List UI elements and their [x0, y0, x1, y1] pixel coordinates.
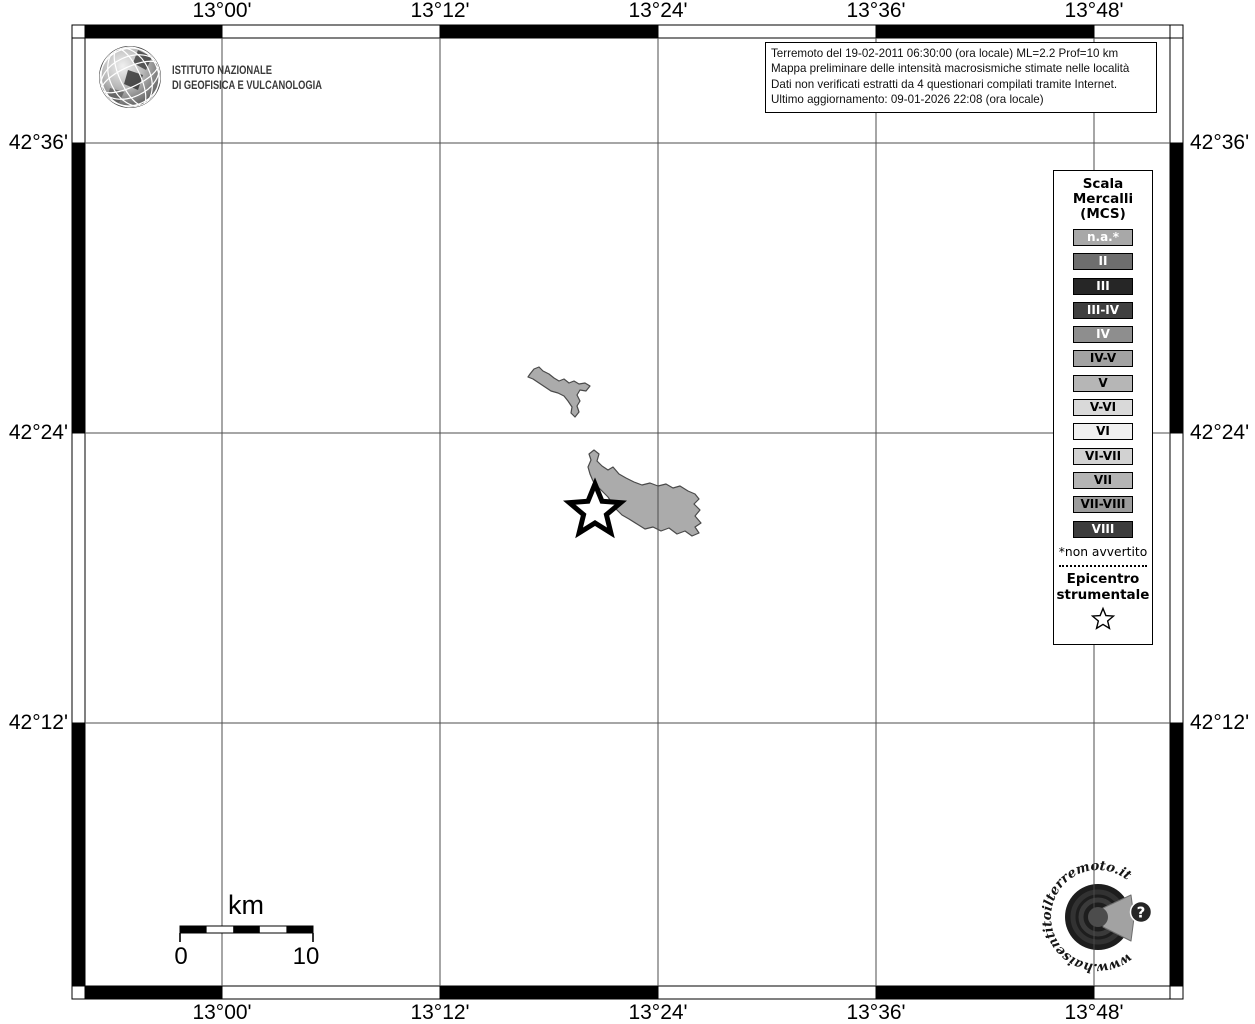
legend-swatch-iv: IV [1073, 326, 1133, 343]
legend-swatch-v: V [1073, 375, 1133, 392]
lon-label-top-1324: 13°24' [598, 0, 718, 22]
legend-epicenter-symbol [1054, 606, 1152, 637]
legend-swatch-ii: II [1073, 253, 1133, 270]
question-mark-icon: ? [1137, 904, 1146, 922]
legend-swatch-v-vi: V-VI [1073, 399, 1133, 416]
info-line-data: Dati non verificati estratti da 4 questi… [771, 77, 1151, 92]
legend-swatch-vii-viii: VII-VIII [1073, 496, 1133, 513]
lon-label-top-1312: 13°12' [380, 0, 500, 22]
legend-swatch-vii: VII [1073, 472, 1133, 489]
info-line-event: Terremoto del 19-02-2011 06:30:00 (ora l… [771, 46, 1151, 61]
seismic-intensity-map-page: { "axis": { "lon_labels": ["13°00'", "13… [0, 0, 1255, 1024]
lon-label-bottom-1324: 13°24' [598, 1002, 718, 1024]
legend-swatches: n.a.* II III III-IV IV IV-V V V-VI VI VI… [1054, 229, 1152, 538]
lon-label-bottom-1300: 13°00' [162, 1002, 282, 1024]
info-line-map: Mappa preliminare delle intensità macros… [771, 61, 1151, 76]
lon-label-top-1300: 13°00' [162, 0, 282, 22]
legend-swatch-vi: VI [1073, 423, 1133, 440]
legend-title: Scala Mercalli (MCS) [1054, 177, 1152, 222]
lon-label-bottom-1348: 13°48' [1034, 1002, 1154, 1024]
lat-label-right-4236: 42°36' [1190, 132, 1255, 154]
legend-epicenter-label: Epicentro strumentale [1054, 571, 1152, 603]
lat-label-left-4212: 42°12' [0, 712, 68, 734]
legend-swatch-iv-v: IV-V [1073, 350, 1133, 367]
lon-label-top-1336: 13°36' [816, 0, 936, 22]
lat-label-right-4212: 42°12' [1190, 712, 1255, 734]
legend-divider [1059, 565, 1147, 567]
ingv-name-line2: DI GEOFISICA E VULCANOLOGIA [172, 80, 322, 92]
scale-bar-end: 10 [293, 943, 320, 970]
scale-bar-start: 0 [174, 943, 187, 970]
ingv-name-line1: ISTITUTO NAZIONALE [172, 65, 272, 77]
lon-label-bottom-1312: 13°12' [380, 1002, 500, 1024]
lat-label-right-4224: 42°24' [1190, 422, 1255, 444]
legend-swatch-na: n.a.* [1073, 229, 1133, 246]
legend-mcs-scale: Scala Mercalli (MCS) n.a.* II III III-IV… [1053, 170, 1153, 645]
lat-label-left-4236: 42°36' [0, 132, 68, 154]
lat-label-left-4224: 42°24' [0, 422, 68, 444]
star-outline-icon [1090, 606, 1117, 633]
legend-swatch-vi-vii: VI-VII [1073, 448, 1133, 465]
scale-bar-unit: km [228, 890, 264, 920]
legend-swatch-iii: III [1073, 278, 1133, 295]
legend-swatch-viii: VIII [1073, 521, 1133, 538]
lon-label-top-1348: 13°48' [1034, 0, 1154, 22]
legend-footnote: *non avvertito [1054, 545, 1152, 559]
earthquake-info-box: Terremoto del 19-02-2011 06:30:00 (ora l… [765, 42, 1157, 113]
lon-label-bottom-1336: 13°36' [816, 1002, 936, 1024]
legend-swatch-iii-iv: III-IV [1073, 302, 1133, 319]
info-line-updated: Ultimo aggiornamento: 09-01-2026 22:08 (… [771, 92, 1151, 107]
